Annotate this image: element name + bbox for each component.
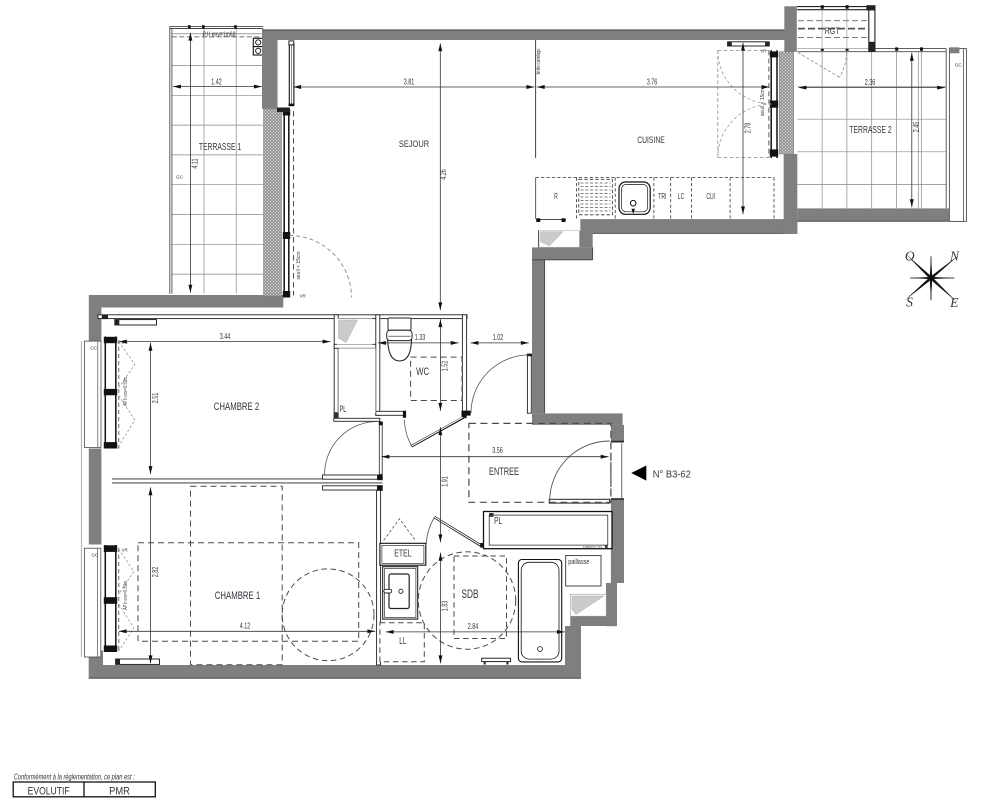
svg-text:2.45: 2.45: [913, 122, 921, 133]
svg-text:1.33: 1.33: [415, 334, 426, 342]
svg-text:1.52: 1.52: [442, 361, 450, 372]
svg-text:paillasse: paillasse: [568, 558, 590, 566]
svg-text:4.11: 4.11: [192, 158, 200, 168]
svg-text:O: O: [905, 249, 915, 264]
svg-text:AP h env=0.59m: AP h env=0.59m: [122, 377, 128, 406]
svg-text:SEJOUR: SEJOUR: [399, 138, 429, 149]
svg-text:limite carrelage: limite carrelage: [536, 48, 543, 74]
svg-text:2.36: 2.36: [865, 79, 876, 87]
svg-text:ENTREE: ENTREE: [489, 466, 519, 478]
svg-text:TERRASSE 1: TERRASSE 1: [199, 141, 241, 153]
svg-text:1.42: 1.42: [211, 78, 222, 86]
svg-text:AP h env=0.59m: AP h env=0.59m: [122, 581, 128, 610]
svg-text:VR: VR: [122, 548, 129, 553]
svg-text:VR: VR: [122, 340, 129, 345]
svg-text:1.02: 1.02: [493, 334, 504, 342]
svg-text:LL: LL: [399, 634, 406, 646]
svg-text:VR: VR: [300, 293, 307, 298]
svg-text:P.H env=1m68: P.H env=1m68: [203, 32, 236, 39]
svg-text:CUISINE: CUISINE: [637, 134, 665, 146]
svg-text:2.51: 2.51: [152, 393, 160, 404]
svg-text:TRI: TRI: [658, 193, 666, 201]
svg-text:HSFP=1.53: HSFP=1.53: [583, 545, 602, 549]
svg-text:PMR: PMR: [109, 786, 130, 798]
svg-text:seuil < 15cm: seuil < 15cm: [296, 251, 302, 279]
svg-text:3.44: 3.44: [220, 333, 231, 341]
svg-text:4.26: 4.26: [440, 169, 448, 180]
svg-text:GC: GC: [176, 175, 184, 180]
svg-text:R: R: [554, 193, 558, 201]
svg-text:PL: PL: [494, 515, 502, 527]
svg-text:RGT: RGT: [825, 25, 840, 36]
svg-text:S: S: [906, 295, 913, 310]
svg-text:Conformément à la réglementati: Conformément à la réglementation, ce pla…: [14, 774, 135, 782]
svg-text:GC: GC: [90, 345, 98, 350]
svg-text:EVOLUTIF: EVOLUTIF: [28, 786, 70, 798]
svg-text:SDB: SDB: [461, 589, 478, 602]
svg-text:WC: WC: [416, 365, 429, 378]
svg-text:3.81: 3.81: [404, 79, 415, 87]
svg-text:PL: PL: [340, 403, 347, 414]
svg-text:3.56: 3.56: [492, 447, 503, 455]
svg-text:CHAMBRE 2: CHAMBRE 2: [214, 401, 259, 414]
svg-text:GC: GC: [955, 63, 963, 68]
svg-text:N° B3-62: N° B3-62: [653, 469, 691, 481]
svg-text:1.83: 1.83: [442, 601, 450, 612]
svg-text:1.91: 1.91: [442, 476, 450, 487]
svg-text:GC: GC: [92, 553, 100, 558]
svg-text:LC: LC: [678, 193, 685, 201]
svg-text:3.76: 3.76: [647, 79, 658, 87]
svg-text:ETEL: ETEL: [394, 547, 411, 559]
svg-text:seuil < 15cm: seuil < 15cm: [760, 88, 766, 116]
svg-text:2.82: 2.82: [152, 567, 160, 578]
svg-text:2.78: 2.78: [744, 123, 752, 134]
svg-text:4.12: 4.12: [240, 623, 251, 631]
svg-text:CHAMBRE 1: CHAMBRE 1: [215, 590, 260, 603]
svg-text:E: E: [949, 295, 959, 310]
svg-text:CUI: CUI: [706, 193, 715, 201]
svg-text:TERRASSE 2: TERRASSE 2: [849, 123, 891, 135]
svg-text:2.84: 2.84: [468, 623, 479, 631]
svg-text:N: N: [949, 249, 960, 264]
